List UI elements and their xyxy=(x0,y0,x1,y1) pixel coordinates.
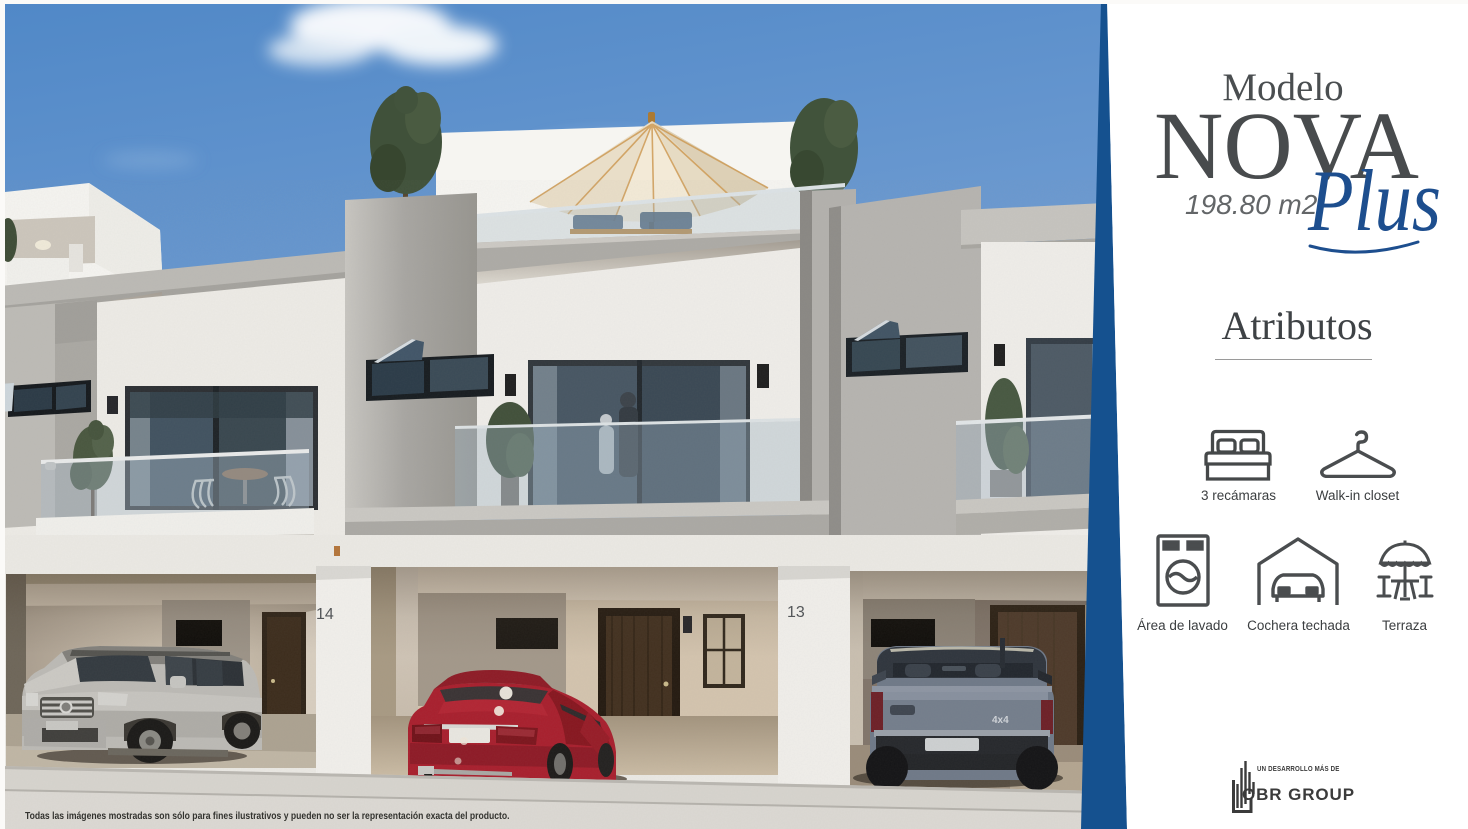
svg-text:Plus: Plus xyxy=(1307,153,1441,250)
